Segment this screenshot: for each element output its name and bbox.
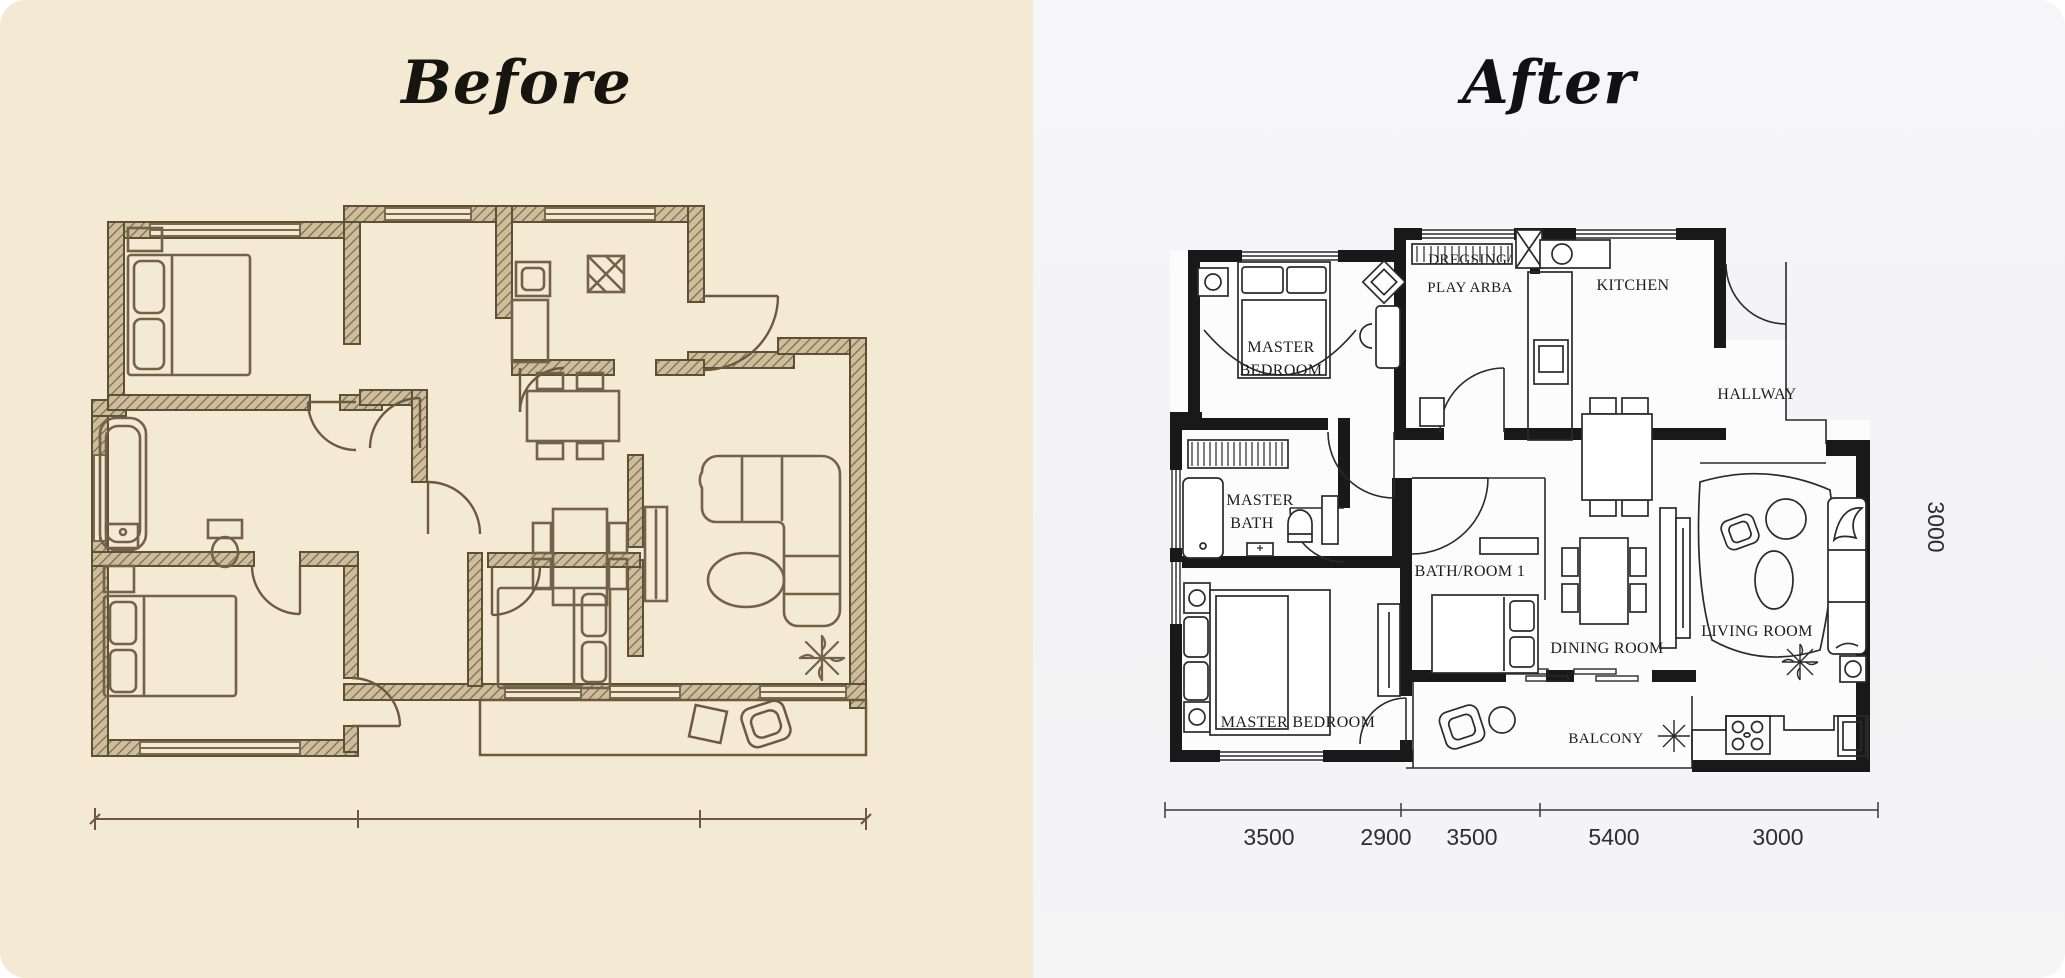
dining-table-upper-sketch [527, 373, 619, 459]
after-dimension-line [1165, 802, 1878, 818]
bath-shelf [1322, 496, 1338, 544]
cabinet-sketch [645, 507, 667, 601]
before-panel: Before [0, 0, 1033, 978]
bed-top-left [128, 228, 250, 375]
label-dressing-line2: PLAY ARBA [1427, 280, 1512, 296]
label-master-bedroom-bottom: MASTER BEDROOM [1221, 714, 1376, 731]
label-master-bedroom-top-line2: BEDROOM [1240, 362, 1323, 379]
dressing-shelf-x [1516, 230, 1542, 268]
label-master-bedroom-top-line1: MASTER [1247, 339, 1314, 356]
dim-3000-bottom: 3000 [1752, 824, 1803, 850]
after-plan-svg: DREGSING/ PLAY ARBA KITCHEN MASTER BEDRO… [1033, 0, 2065, 978]
before-after-card: Before [0, 0, 2065, 978]
label-bathroom1: BATH/ROOM 1 [1415, 563, 1526, 580]
after-panel: After [1033, 0, 2065, 978]
bed-bottom-left [104, 566, 236, 696]
dim-3000-side: 3000 [1923, 501, 1949, 552]
label-balcony: BALCONY [1568, 731, 1643, 747]
bathroom1-shelf [1480, 538, 1538, 554]
dim-3500-a: 3500 [1243, 824, 1294, 850]
before-walls [92, 206, 866, 756]
dining-cabinet [1660, 508, 1690, 648]
nightstand-bl-2 [1184, 702, 1210, 732]
kitchen-sink [1540, 240, 1610, 268]
before-balcony [480, 698, 866, 755]
before-dimension-line [90, 808, 871, 830]
label-master-bath-line1: MASTER [1226, 492, 1293, 509]
wardrobe-bl [1378, 604, 1400, 696]
toilet-after [1288, 510, 1312, 542]
daybed-bathroom1 [1432, 595, 1538, 673]
living-plant [1782, 644, 1818, 680]
kitchen-sketch [512, 256, 624, 362]
living-speaker-box [1840, 656, 1866, 682]
dim-2900: 2900 [1360, 824, 1411, 850]
nightstand-bl-1 [1184, 583, 1210, 613]
balcony-table-sketch [689, 705, 727, 743]
coffee-table-oval-sketch [708, 553, 784, 607]
sofa-after [1828, 498, 1866, 654]
dressing-box [1420, 398, 1444, 426]
bath-sink-after [1247, 543, 1273, 556]
balcony-chair-sketch [739, 698, 793, 750]
hall-table [1582, 398, 1652, 516]
label-dressing-line1: DREGSING/ [1428, 252, 1512, 268]
dim-3500-b: 3500 [1446, 824, 1497, 850]
label-living: LIVING ROOM [1701, 623, 1813, 640]
label-hallway: HALLWAY [1717, 386, 1796, 403]
label-kitchen: KITCHEN [1596, 277, 1669, 294]
plant-sketch [800, 636, 844, 680]
nightstand-lamp-top [1198, 268, 1228, 296]
bathtub-after [1183, 478, 1223, 558]
label-dining: DINING ROOM [1550, 640, 1663, 657]
label-master-bath-line2: BATH [1230, 515, 1273, 532]
dim-5400: 5400 [1588, 824, 1639, 850]
before-plan-svg [0, 0, 1033, 978]
